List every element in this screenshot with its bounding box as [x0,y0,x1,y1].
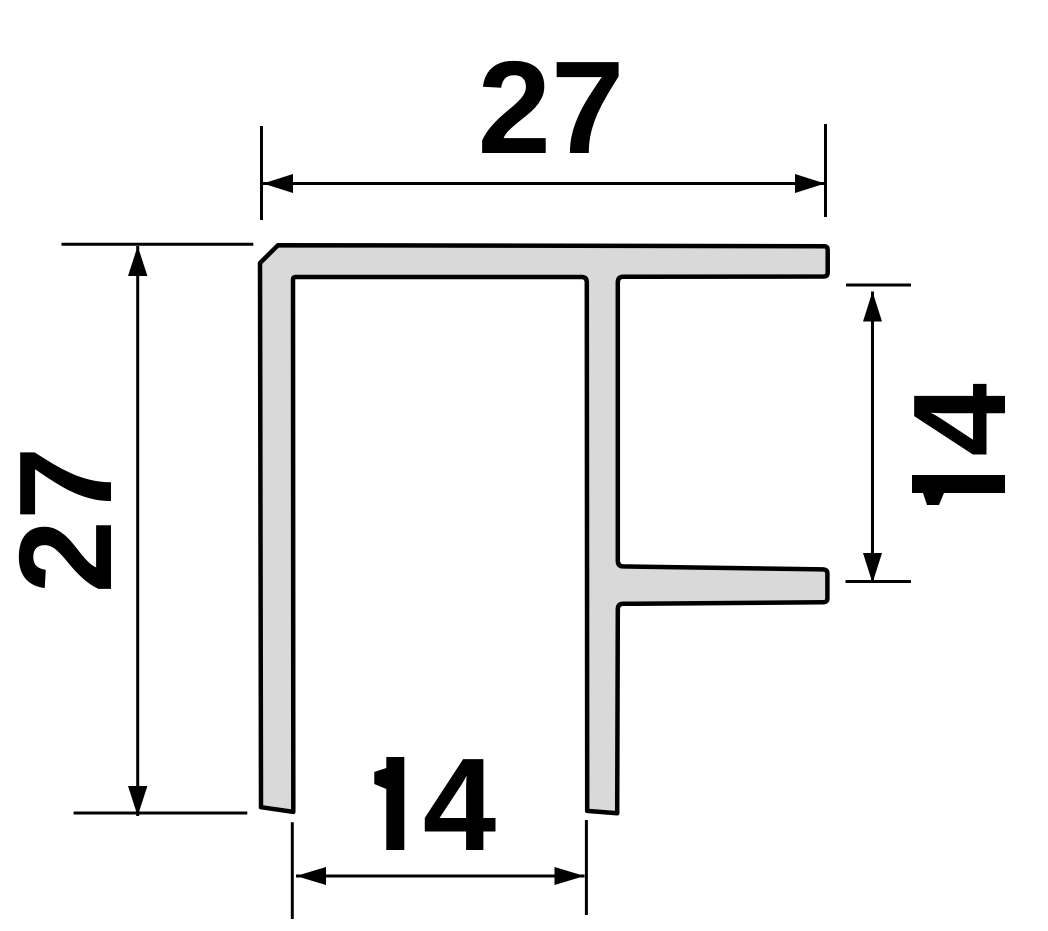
svg-text:4: 4 [423,731,496,878]
svg-text:27: 27 [0,447,139,594]
svg-text:27: 27 [478,34,625,181]
svg-text:4: 4 [886,383,1033,456]
